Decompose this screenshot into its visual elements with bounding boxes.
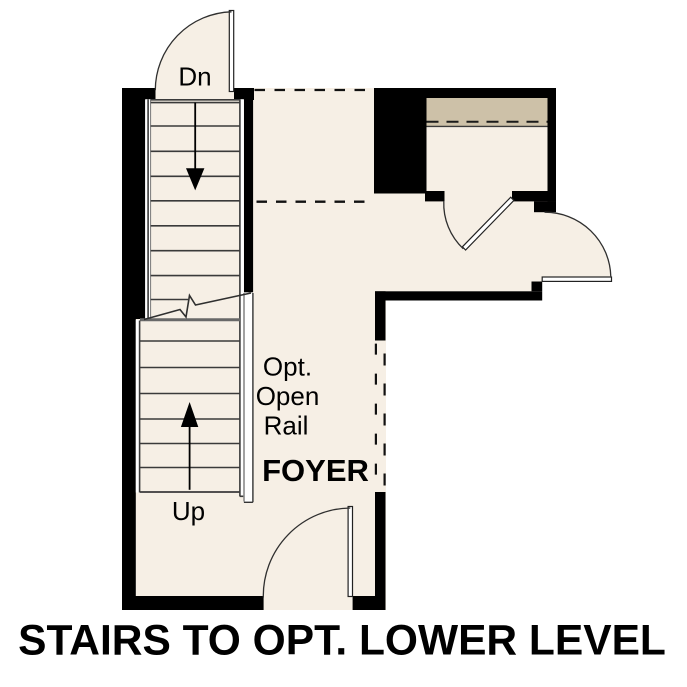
- svg-text:Rail: Rail: [264, 411, 309, 441]
- svg-text:Open: Open: [256, 381, 320, 411]
- svg-text:Dn: Dn: [178, 62, 211, 92]
- svg-text:Opt.: Opt.: [263, 352, 312, 382]
- svg-text:FOYER: FOYER: [262, 453, 369, 488]
- svg-text:STAIRS TO OPT. LOWER LEVEL: STAIRS TO OPT. LOWER LEVEL: [18, 617, 666, 664]
- svg-text:Up: Up: [172, 496, 205, 526]
